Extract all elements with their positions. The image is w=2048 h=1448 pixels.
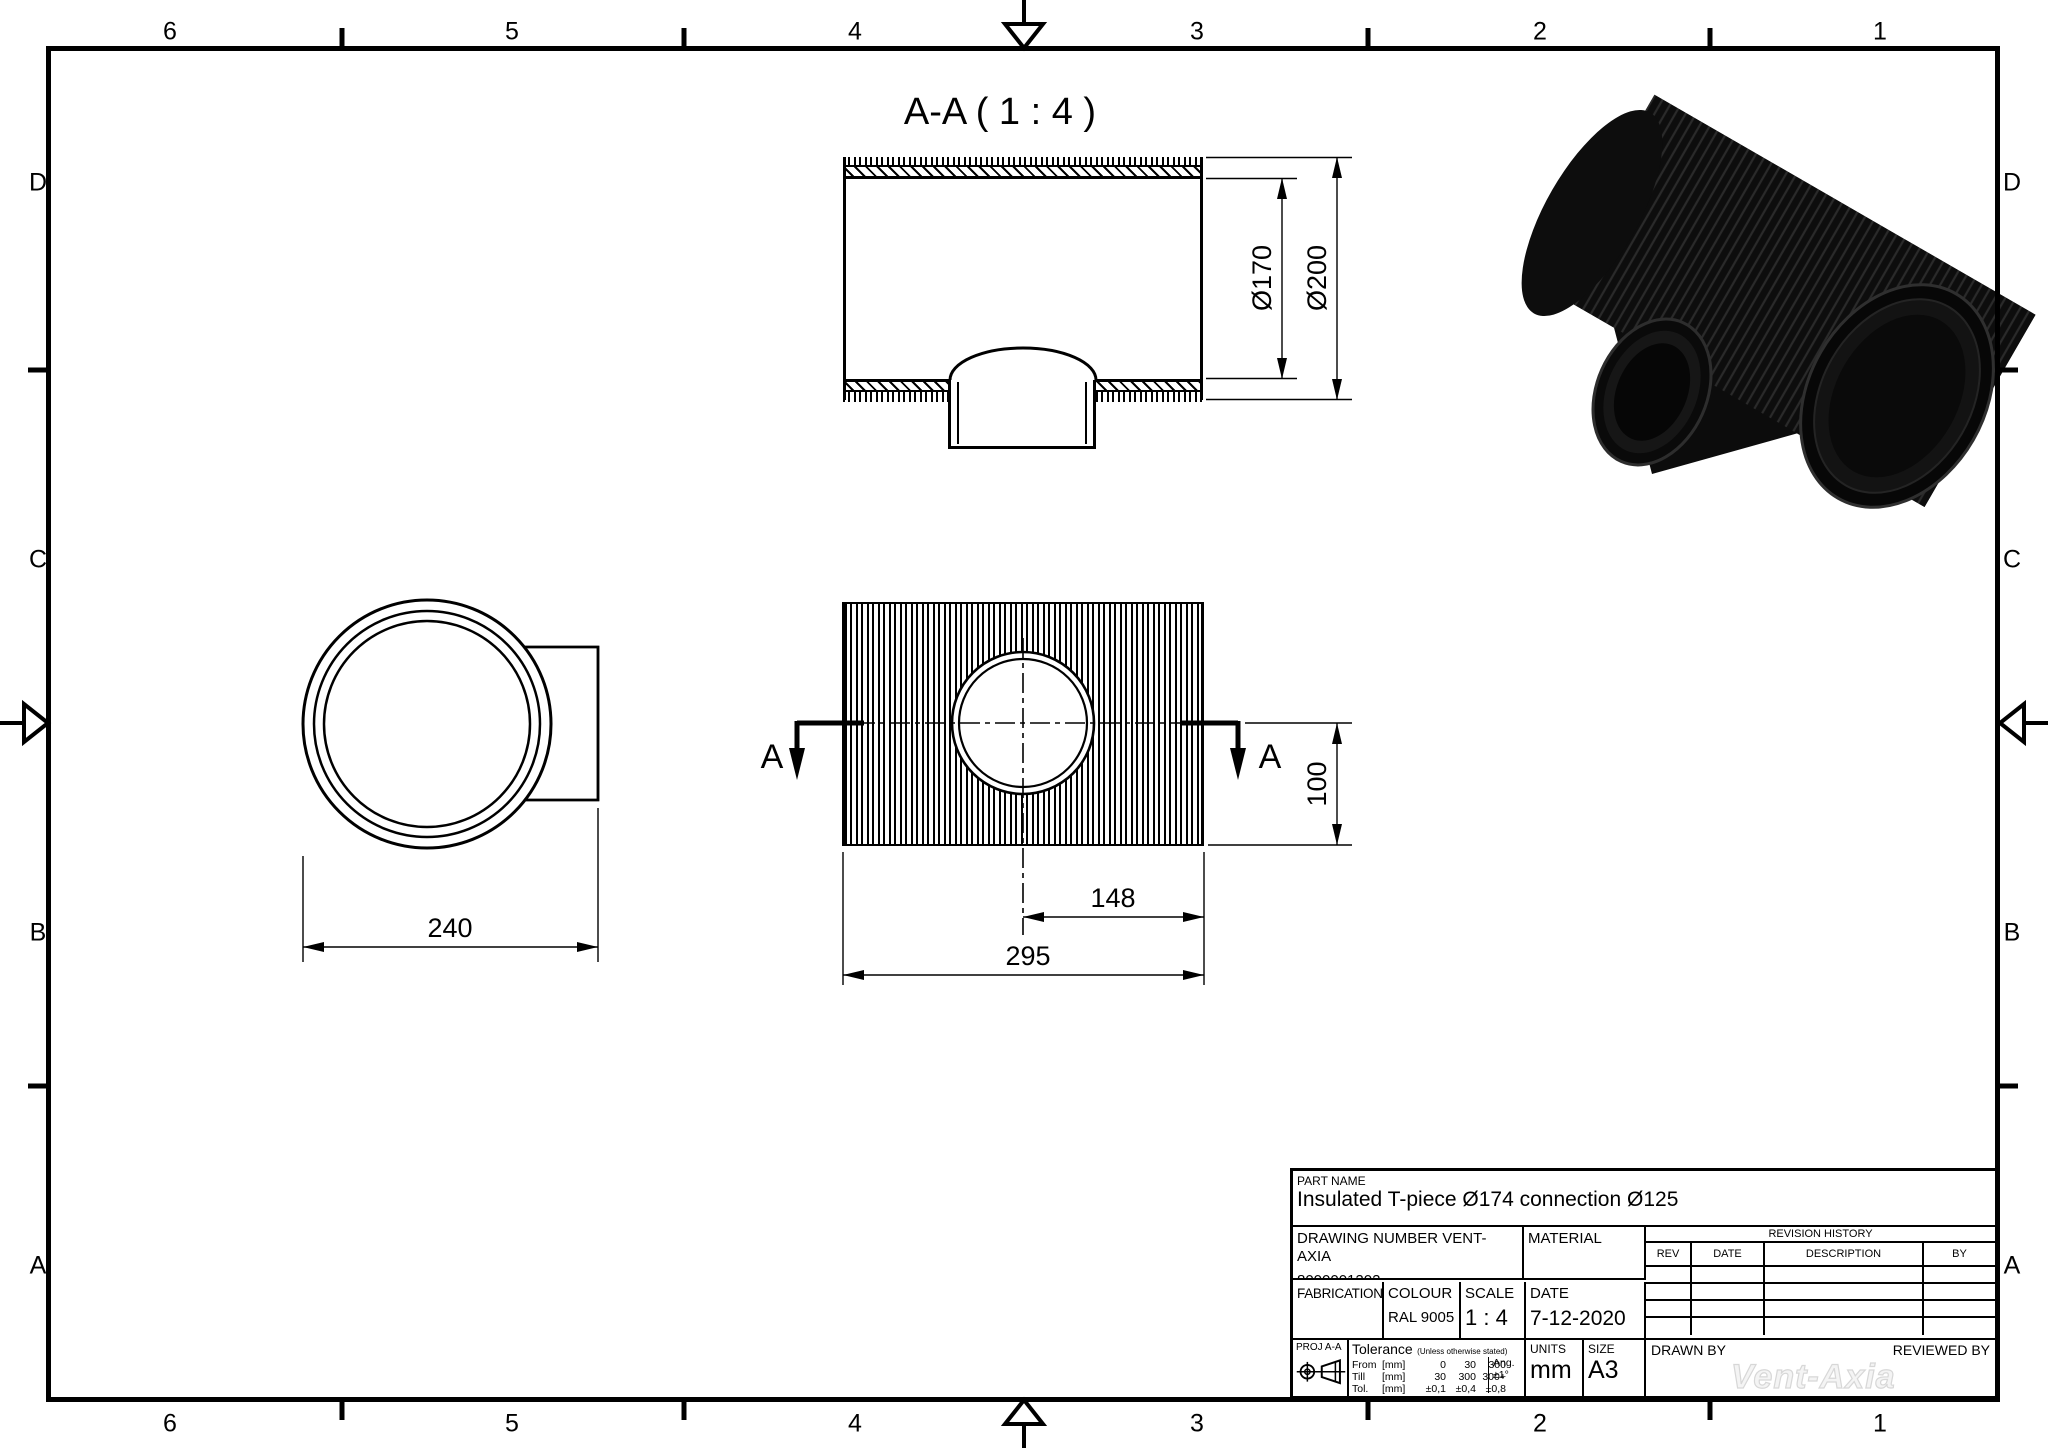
size-label: SIZE <box>1588 1342 1640 1356</box>
dim-240-text: 240 <box>427 913 472 943</box>
date-label: DATE <box>1530 1285 1640 1303</box>
rev-col-header: REV <box>1646 1243 1692 1265</box>
part-name-value: Insulated T-piece Ø174 connection Ø125 <box>1297 1188 1991 1212</box>
part-name-label: PART NAME <box>1297 1174 1991 1188</box>
dim-148-text: 148 <box>1090 883 1135 913</box>
drawn-by-cell: DRAWN BY REVIEWED BY Vent-Axia <box>1646 1340 1995 1396</box>
projection-label: PROJ A-A <box>1296 1342 1344 1353</box>
colour-label: COLOUR <box>1388 1285 1455 1303</box>
fabrication-label: FABRICATION <box>1297 1285 1378 1303</box>
zone-row-c-right: C <box>2003 546 2021 575</box>
tolerance-cell: Tolerance (Unless otherwise stated) From… <box>1349 1340 1526 1396</box>
dim-outer-diameter-text: Ø200 <box>1302 245 1332 311</box>
description-col-header: DESCRIPTION <box>1765 1243 1924 1265</box>
zone-col-5-top: 5 <box>505 18 519 47</box>
dim-inner-diameter-text: Ø170 <box>1247 245 1277 311</box>
zone-row-d-left: D <box>29 169 47 198</box>
revision-row-empty <box>1646 1301 1995 1318</box>
date-col-header: DATE <box>1692 1243 1765 1265</box>
drawing-number-cell: DRAWING NUMBER VENT-AXIA 8000001202 <box>1293 1227 1524 1280</box>
zone-col-3-top: 3 <box>1190 18 1204 47</box>
zone-col-3-bottom: 3 <box>1190 1410 1204 1439</box>
cut-arrow-right <box>1230 748 1246 780</box>
pipe-outer-circle <box>303 600 551 848</box>
tolerance-title: Tolerance <box>1352 1341 1413 1357</box>
branch-dome <box>950 348 1096 380</box>
revision-history-title: REVISION HISTORY <box>1646 1227 1995 1243</box>
center-mark-bottom <box>1005 1400 1043 1448</box>
center-mark-right <box>2000 704 2048 742</box>
revision-history-table: REVISION HISTORY REV DATE DESCRIPTION BY <box>1646 1227 1995 1340</box>
scale-cell: SCALE 1 : 4 <box>1461 1282 1526 1340</box>
zone-col-4-bottom: 4 <box>848 1410 862 1439</box>
zone-col-5-bottom: 5 <box>505 1410 519 1439</box>
tolerance-angle: Ang. ±1° <box>1488 1357 1520 1393</box>
zone-col-6-top: 6 <box>163 18 177 47</box>
zone-col-1-top: 1 <box>1873 18 1887 47</box>
scale-label: SCALE <box>1465 1285 1520 1303</box>
dim-295-text: 295 <box>1005 941 1050 971</box>
drawing-sheet: A-A ( 1 : 4 ) Ø200 <box>0 0 2048 1448</box>
date-value: 7-12-2020 <box>1530 1307 1640 1331</box>
cut-arrow-left <box>789 748 805 780</box>
drawing-number-label: DRAWING NUMBER VENT-AXIA <box>1297 1230 1518 1266</box>
center-mark-top <box>1005 0 1043 48</box>
revision-history-header: REV DATE DESCRIPTION BY <box>1646 1243 1995 1267</box>
zone-col-4-top: 4 <box>848 18 862 47</box>
zone-row-a-left: A <box>30 1252 47 1281</box>
fabrication-cell: FABRICATION <box>1293 1282 1384 1340</box>
zone-row-d-right: D <box>2003 169 2021 198</box>
vent-axia-watermark: Vent-Axia <box>1731 1358 1896 1396</box>
material-cell: MATERIAL <box>1524 1227 1646 1280</box>
reviewed-by-label: REVIEWED BY <box>1893 1342 1990 1358</box>
dimension-295: 295 <box>843 941 1204 980</box>
cut-label-right: A <box>1259 738 1282 776</box>
zone-col-6-bottom: 6 <box>163 1410 177 1439</box>
zone-row-b-right: B <box>2004 919 2021 948</box>
front-view: A A 100 148 <box>761 638 1352 985</box>
3d-preview <box>1494 90 2035 543</box>
projection-cell: PROJ A-A <box>1293 1340 1349 1396</box>
title-block: PART NAME Insulated T-piece Ø174 connect… <box>1290 1168 1998 1399</box>
part-name-cell: PART NAME Insulated T-piece Ø174 connect… <box>1293 1171 1995 1227</box>
units-cell: UNITS mm <box>1526 1340 1584 1396</box>
material-label: MATERIAL <box>1528 1230 1640 1248</box>
units-value: mm <box>1530 1356 1578 1384</box>
size-cell: SIZE A3 <box>1584 1340 1646 1396</box>
by-col-header: BY <box>1924 1243 1995 1265</box>
zone-col-2-top: 2 <box>1533 18 1547 47</box>
center-mark-left <box>0 704 48 742</box>
title-block-bottom-row: PROJ A-A Tolerance (Unless otherwise sta… <box>1293 1340 1995 1396</box>
section-view-title: A-A ( 1 : 4 ) <box>904 91 1096 133</box>
section-view: A-A ( 1 : 4 ) Ø200 <box>845 91 1353 448</box>
units-label: UNITS <box>1530 1342 1578 1356</box>
drawing-number-value: 8000001202 <box>1297 1272 1518 1280</box>
side-view: 240 <box>303 600 598 962</box>
zone-col-2-bottom: 2 <box>1533 1410 1547 1439</box>
tolerance-note: (Unless otherwise stated) <box>1417 1347 1507 1356</box>
date-cell: DATE 7-12-2020 <box>1526 1282 1646 1340</box>
scale-value: 1 : 4 <box>1465 1305 1520 1331</box>
dimension-inner-diameter: Ø170 <box>1206 178 1297 379</box>
colour-cell: COLOUR RAL 9005 <box>1384 1282 1461 1340</box>
zone-row-c-left: C <box>29 546 47 575</box>
colour-value: RAL 9005 <box>1388 1309 1455 1327</box>
cut-label-left: A <box>761 738 784 776</box>
first-angle-projection-icon <box>1296 1353 1346 1389</box>
zone-row-b-left: B <box>30 919 47 948</box>
revision-row-empty <box>1646 1284 1995 1301</box>
revision-row-empty <box>1646 1318 1995 1335</box>
dim-height-text: 100 <box>1302 761 1332 806</box>
zone-row-a-right: A <box>2004 1252 2021 1281</box>
size-value: A3 <box>1588 1356 1640 1384</box>
zone-col-1-bottom: 1 <box>1873 1410 1887 1439</box>
revision-row-empty <box>1646 1267 1995 1284</box>
